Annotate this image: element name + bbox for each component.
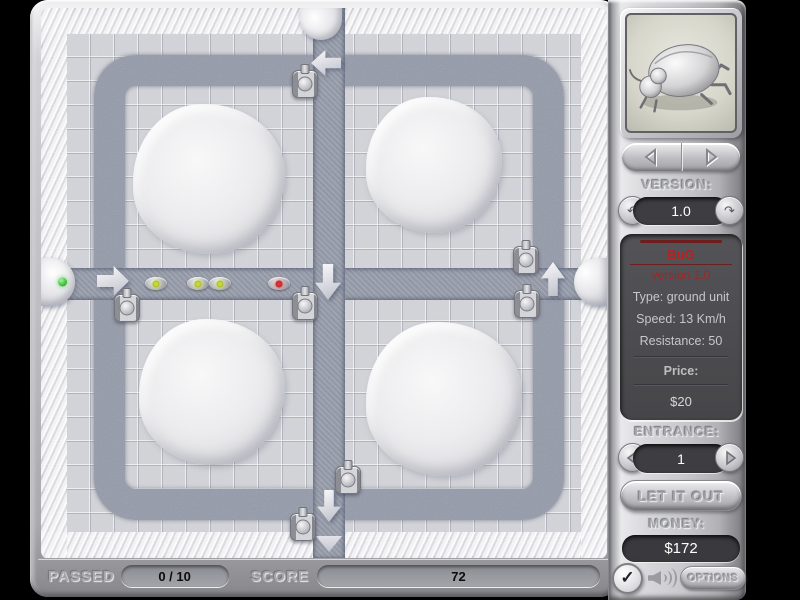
- unit-type: Type: ground unit: [620, 290, 742, 304]
- version-label: VERSION:: [608, 177, 746, 192]
- passed-counter: 0 / 10: [121, 565, 229, 587]
- unit-preview-image: [625, 13, 737, 133]
- passed-label: PASSED: [48, 568, 115, 585]
- unit-preview-frame: [620, 8, 742, 138]
- path-arrow-down: [317, 490, 341, 522]
- dirt-mound: [366, 97, 502, 233]
- bug-status-dot: [276, 280, 283, 287]
- unit-speed: Speed: 13 Km/h: [620, 312, 742, 326]
- entrance-value: 1: [677, 451, 685, 467]
- unit-name: BuG: [620, 247, 742, 262]
- path-arrow-up: [541, 262, 565, 296]
- unit-version: version 1.0: [620, 268, 742, 282]
- check-icon: ✓: [620, 568, 634, 588]
- path-arrow-down: [315, 264, 341, 300]
- version-next-button[interactable]: ↷: [715, 196, 744, 225]
- turret[interactable]: [514, 290, 540, 318]
- let-it-out-label: LET IT OUT: [638, 488, 724, 504]
- bug-enemy: [208, 276, 232, 291]
- turret[interactable]: [335, 466, 361, 494]
- confirm-button[interactable]: ✓: [612, 563, 643, 594]
- bug-status-dot: [217, 280, 224, 287]
- marquee-line: [640, 240, 723, 243]
- dirt-mound: [139, 319, 285, 465]
- unit-info-panel: BuG version 1.0 Type: ground unit Speed:…: [620, 234, 742, 420]
- status-bar-seam: [38, 558, 610, 560]
- right-triangle-icon: [700, 146, 722, 168]
- entrance-label: ENTRANCE:: [608, 424, 746, 439]
- bottom-controls: ✓ OPTIONS: [612, 561, 746, 595]
- let-it-out-button[interactable]: LET IT OUT: [620, 480, 742, 511]
- prev-unit-button[interactable]: [622, 143, 682, 171]
- beetle-icon: [627, 15, 735, 131]
- score-counter: 72: [317, 565, 600, 587]
- turret[interactable]: [114, 294, 140, 322]
- entrance-next-button[interactable]: [715, 443, 744, 472]
- turret[interactable]: [290, 513, 316, 541]
- next-unit-button[interactable]: [682, 143, 741, 171]
- options-label: OPTIONS: [688, 572, 739, 584]
- money-value: $172: [664, 540, 697, 557]
- bug-enemy: [186, 276, 210, 291]
- price-label: Price:: [620, 364, 742, 378]
- unit-navigator: [622, 143, 740, 171]
- status-bar: PASSED 0 / 10 SCORE 72: [40, 562, 610, 590]
- turret[interactable]: [292, 292, 318, 320]
- right-triangle-icon: [721, 449, 739, 467]
- money-label: MONEY:: [608, 516, 746, 531]
- bug-enemy: [267, 276, 291, 291]
- redo-arrow-icon: ↷: [724, 204, 735, 217]
- left-triangle-icon: [640, 146, 662, 168]
- game-window: PASSED 0 / 10 SCORE 72: [30, 0, 618, 597]
- price-value: $20: [620, 394, 742, 409]
- divider: [634, 356, 728, 357]
- version-selector: ↶ 1.0 ↷: [620, 196, 742, 226]
- money-display: $172: [622, 535, 740, 562]
- bug-status-dot: [153, 280, 160, 287]
- options-button[interactable]: OPTIONS: [680, 566, 746, 590]
- entrance-selector: 1: [620, 443, 742, 474]
- green-dot-indicator: [58, 278, 67, 287]
- bug-enemy: [144, 276, 168, 291]
- turret[interactable]: [513, 246, 539, 274]
- score-value: 72: [451, 569, 465, 584]
- divider: [630, 264, 732, 265]
- divider: [634, 384, 728, 385]
- game-board[interactable]: [41, 8, 607, 558]
- unit-resistance: Resistance: 50: [620, 334, 742, 348]
- bug-status-dot: [195, 280, 202, 287]
- dirt-mound: [366, 322, 522, 476]
- dirt-mound: [133, 104, 285, 254]
- control-panel: VERSION: ↶ 1.0 ↷ BuG version 1.0 Type: g…: [608, 0, 746, 600]
- turret[interactable]: [292, 70, 318, 98]
- version-value: 1.0: [671, 203, 690, 219]
- passed-value: 0 / 10: [158, 569, 191, 584]
- score-label: SCORE: [251, 568, 309, 585]
- volume-icon[interactable]: [648, 567, 676, 589]
